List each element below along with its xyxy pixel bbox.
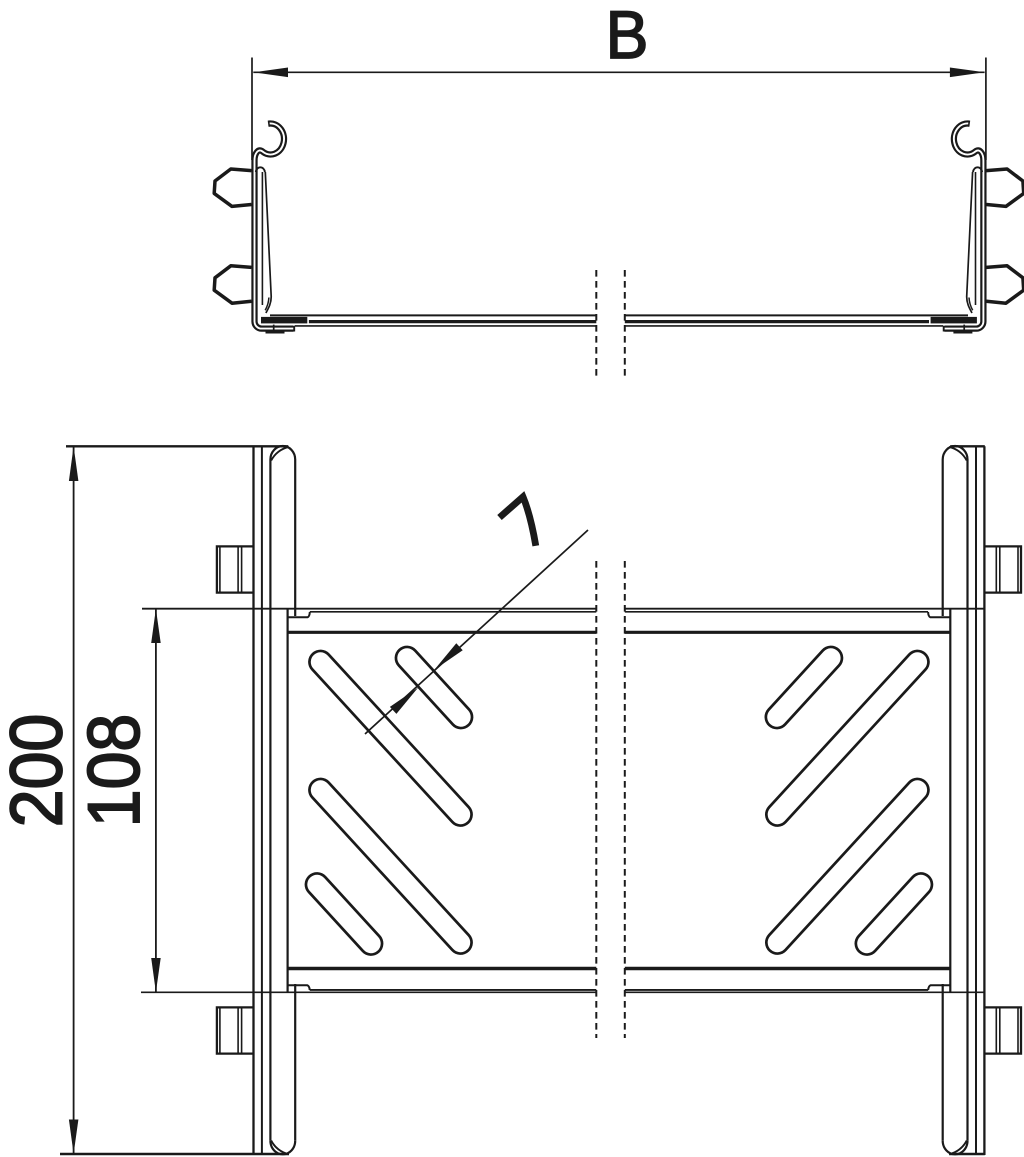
- svg-text:200: 200: [0, 714, 77, 827]
- svg-text:108: 108: [73, 714, 155, 827]
- svg-text:B: B: [606, 0, 649, 72]
